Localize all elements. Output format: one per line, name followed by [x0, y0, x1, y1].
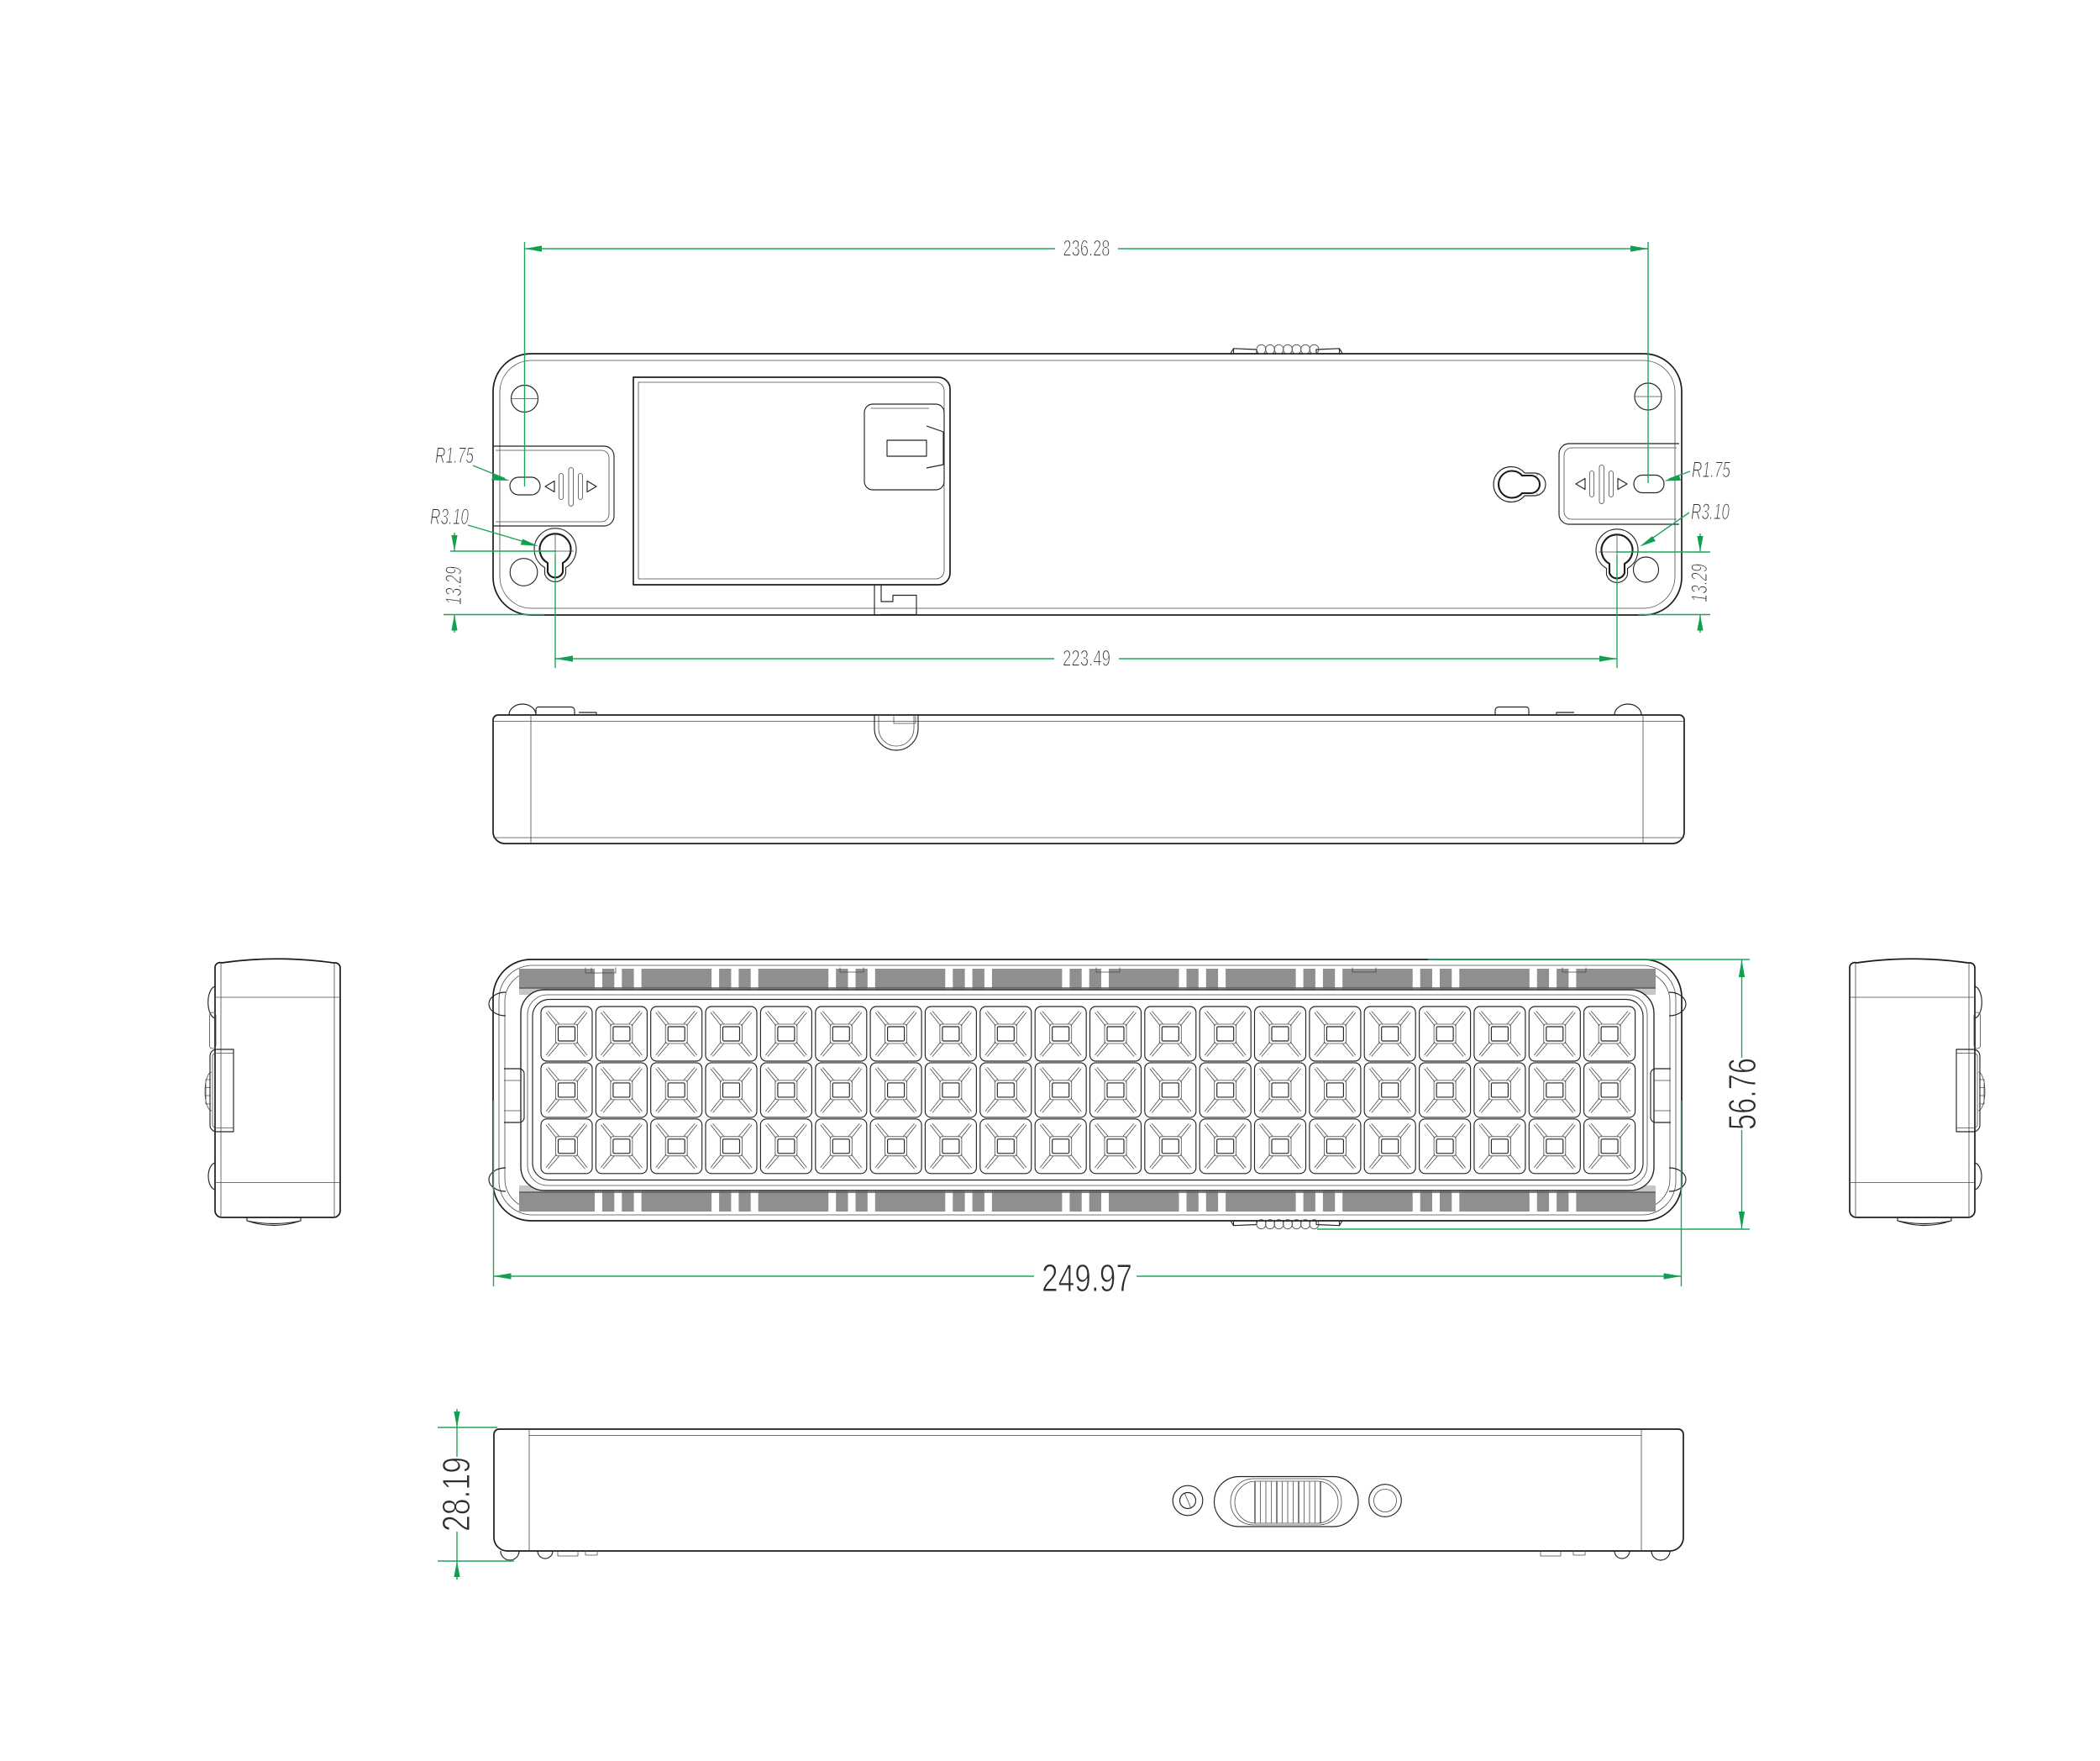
svg-text:249.97: 249.97 [1042, 1256, 1132, 1300]
svg-text:236.28: 236.28 [1063, 236, 1110, 261]
svg-text:R3.10: R3.10 [1691, 499, 1730, 524]
svg-text:R1.75: R1.75 [1692, 457, 1730, 482]
svg-text:R3.10: R3.10 [430, 504, 469, 529]
svg-text:28.19: 28.19 [434, 1457, 478, 1532]
svg-text:13.29: 13.29 [441, 566, 466, 605]
svg-text:56.76: 56.76 [1720, 1058, 1764, 1130]
svg-text:13.29: 13.29 [1687, 564, 1712, 602]
svg-text:R1.75: R1.75 [435, 443, 474, 468]
svg-text:223.49: 223.49 [1063, 646, 1110, 671]
